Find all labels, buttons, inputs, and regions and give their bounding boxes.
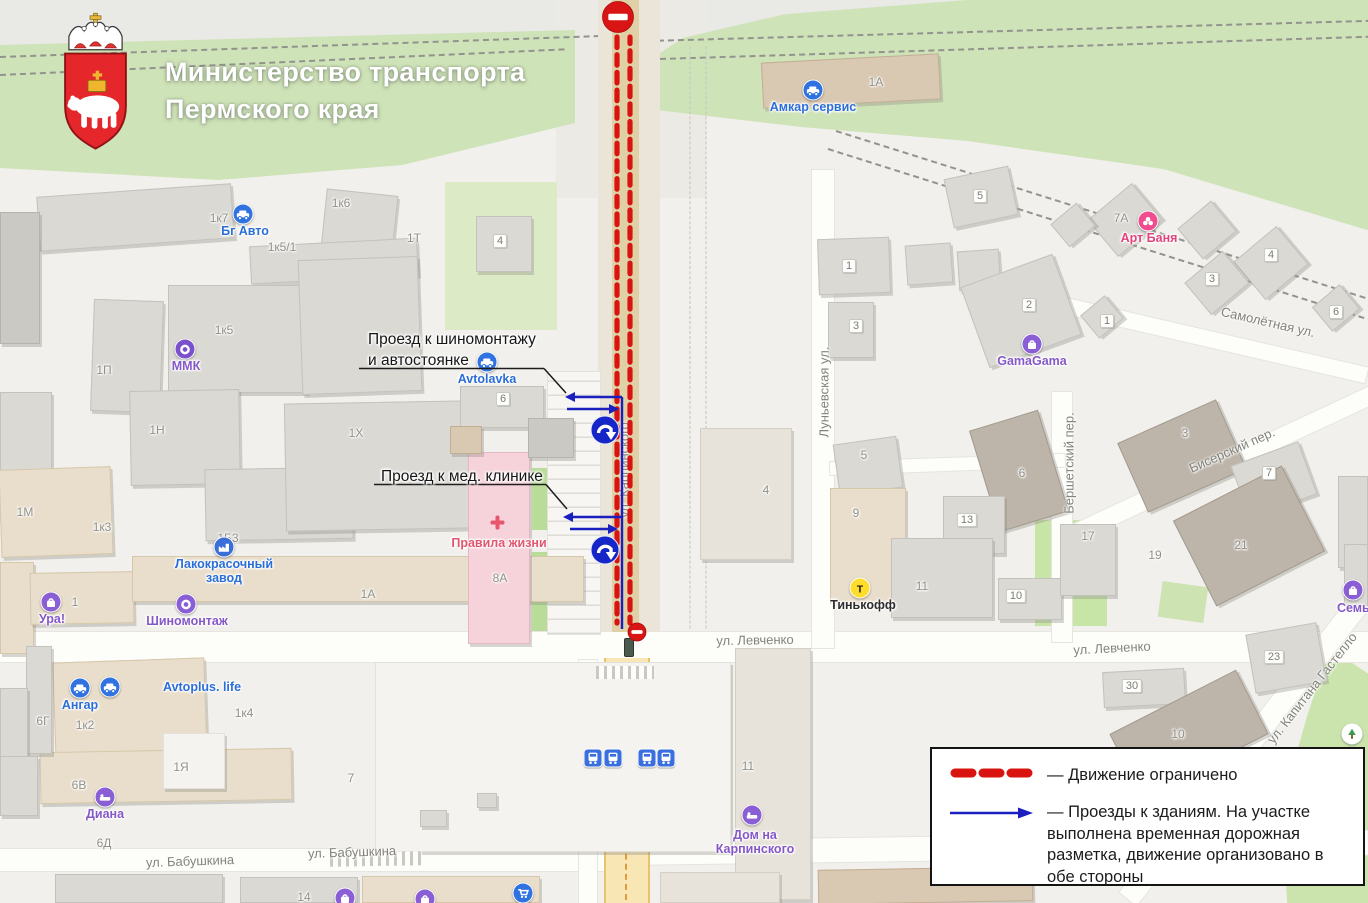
red-dashed-line-icon xyxy=(947,765,1039,781)
address-label: 19 xyxy=(1148,548,1161,562)
address-label: 30 xyxy=(1122,679,1142,693)
hotel-poi-icon xyxy=(742,805,763,826)
bus-stop-icon xyxy=(638,749,657,768)
street-label: Самолётная ул. xyxy=(1220,304,1317,340)
poi-label: Тинькофф xyxy=(830,598,896,612)
street-label: Бершетский пер. xyxy=(1062,412,1077,513)
address-label: 4 xyxy=(493,234,507,248)
tire-poi-icon xyxy=(176,594,197,615)
poi-label: Avtoplus. life xyxy=(163,680,241,694)
address-label: 17 xyxy=(1081,529,1094,543)
address-label: 1к6 xyxy=(332,196,351,210)
shop-poi-icon xyxy=(1343,580,1364,601)
car-poi-icon xyxy=(803,80,824,101)
hotel-poi-icon xyxy=(95,787,116,808)
address-label: 10 xyxy=(1171,727,1184,741)
poi-label: Ангар xyxy=(62,698,98,712)
car-poi-icon xyxy=(70,678,91,699)
blue-arrow-icon xyxy=(947,805,1039,821)
street-label: ул. Левченко xyxy=(716,632,794,648)
bus-stop-icon xyxy=(604,749,623,768)
address-label: 9 xyxy=(853,506,860,520)
poi-label: Диана xyxy=(86,807,124,821)
poi-label: Avtolavka xyxy=(458,372,517,386)
street-label: ул. Бабушкина xyxy=(146,852,235,870)
legend-item-restricted: — Движение ограничено xyxy=(947,765,1349,786)
address-label: 13 xyxy=(957,513,977,527)
address-label: 10 xyxy=(1006,589,1026,603)
address-label: 1Н xyxy=(149,423,164,437)
bus-stop-icon xyxy=(657,749,676,768)
callout-line: Проезд к мед. клинике xyxy=(381,466,543,487)
bath-poi-icon xyxy=(1138,211,1159,232)
perm-krai-emblem-icon xyxy=(48,10,143,158)
address-label: 1к3 xyxy=(93,520,112,534)
poi-label: Амкар сервис xyxy=(770,100,856,114)
address-label: 1к7 xyxy=(210,211,229,225)
address-label: 4 xyxy=(1264,248,1278,262)
poi-label: ММК xyxy=(172,359,200,373)
poi-label: Дом на Карпинского xyxy=(699,828,811,856)
address-label: 21 xyxy=(1234,538,1247,552)
poi-label: Лакокрасочный завод xyxy=(165,557,283,585)
address-label: 4 xyxy=(763,483,770,497)
address-label: 3 xyxy=(1205,272,1219,286)
address-label: 1к4 xyxy=(235,706,254,720)
shop-poi-icon xyxy=(41,592,62,613)
shop-poi-icon xyxy=(335,888,356,903)
address-label: 1Я xyxy=(173,760,188,774)
address-label: 6Д xyxy=(97,836,112,850)
bus-stop-icon xyxy=(584,749,603,768)
poi-label: GamaGama xyxy=(997,354,1066,368)
address-label: 23 xyxy=(1264,650,1284,664)
map-infographic: ул. Левченкоул. Левченкоул. Бабушкинаул.… xyxy=(0,0,1368,903)
legend-item-access: — Проезды к зданиям. На участке выполнен… xyxy=(947,802,1349,888)
address-label: 11 xyxy=(742,759,754,773)
address-label: 7А xyxy=(1114,211,1129,225)
address-label: 6 xyxy=(1019,466,1026,480)
address-label: 5 xyxy=(973,189,987,203)
address-label: 1 xyxy=(1100,314,1114,328)
street-label: Луньевская ул. xyxy=(817,347,832,438)
bank-poi-icon: Т xyxy=(850,578,871,599)
title-line2: Пермского края xyxy=(165,91,525,128)
address-label: 3 xyxy=(849,319,863,333)
callout-line: Проезд к шиномонтажу xyxy=(368,329,536,350)
poi-label: Ура! xyxy=(39,612,65,626)
callout-label: Проезд к мед. клинике xyxy=(381,466,543,487)
shop-poi-icon xyxy=(415,889,436,903)
address-label: 1Х xyxy=(349,426,364,440)
callout-line: и автостоянке xyxy=(368,350,536,371)
cart-poi-icon xyxy=(513,883,534,903)
address-label: 1А xyxy=(869,75,884,89)
ministry-header: Министерство транспорта Пермского края xyxy=(48,10,525,158)
title-line1: Министерство транспорта xyxy=(165,54,525,91)
address-label: 5 xyxy=(861,448,868,462)
legend-label: — Проезды к зданиям. На участке выполнен… xyxy=(1047,802,1349,888)
address-label: 7 xyxy=(1262,466,1276,480)
address-label: 1к2 xyxy=(76,718,95,732)
poi-label: Шиномонтаж xyxy=(146,614,227,628)
address-label: 8А xyxy=(493,571,508,585)
address-label: 1А xyxy=(361,587,376,601)
street-label: ул. Бабушкина xyxy=(308,843,397,861)
address-label: 7 xyxy=(348,771,355,785)
address-label: 3 xyxy=(1182,426,1189,440)
legend-label: — Движение ограничено xyxy=(1047,765,1237,786)
address-label: 1 xyxy=(72,595,79,609)
poi-label: Семья xyxy=(1337,601,1368,615)
address-label: 6 xyxy=(496,392,510,406)
address-label: 2 xyxy=(1022,298,1036,312)
car-poi-icon xyxy=(233,204,254,225)
address-label: 11 xyxy=(916,579,928,593)
car-poi-icon xyxy=(100,677,121,698)
tree-poi-icon xyxy=(1342,724,1363,745)
poi-label: Арт Баня xyxy=(1121,231,1178,245)
callout-label: Проезд к шиномонтажуи автостоянке xyxy=(368,329,536,371)
address-label: 1к5 xyxy=(215,323,234,337)
address-label: 6В xyxy=(72,778,87,792)
address-label: 1М xyxy=(17,505,34,519)
address-label: 1Т xyxy=(407,231,421,245)
poi-label: Правила жизни xyxy=(451,536,546,550)
ministry-title: Министерство транспорта Пермского края xyxy=(165,54,525,128)
medcross-poi-icon xyxy=(487,512,508,533)
factory-poi-icon xyxy=(214,537,235,558)
street-label: ул. Левченко xyxy=(1073,638,1151,657)
address-label: 1 xyxy=(842,259,856,273)
svg-text:Т: Т xyxy=(857,584,864,595)
poi-label: Бг Авто xyxy=(221,224,269,238)
ring-poi-icon xyxy=(175,339,196,360)
address-label: 1к5/1 xyxy=(268,240,297,254)
legend: — Движение ограничено — Проезды к здания… xyxy=(930,747,1365,886)
address-label: 14 xyxy=(297,890,310,903)
street-label: ул. Карпинского xyxy=(617,422,632,518)
address-label: 6 xyxy=(1329,305,1343,319)
shop-poi-icon xyxy=(1022,334,1043,355)
address-label: 1П xyxy=(96,363,111,377)
address-label: 6Г xyxy=(36,714,49,728)
